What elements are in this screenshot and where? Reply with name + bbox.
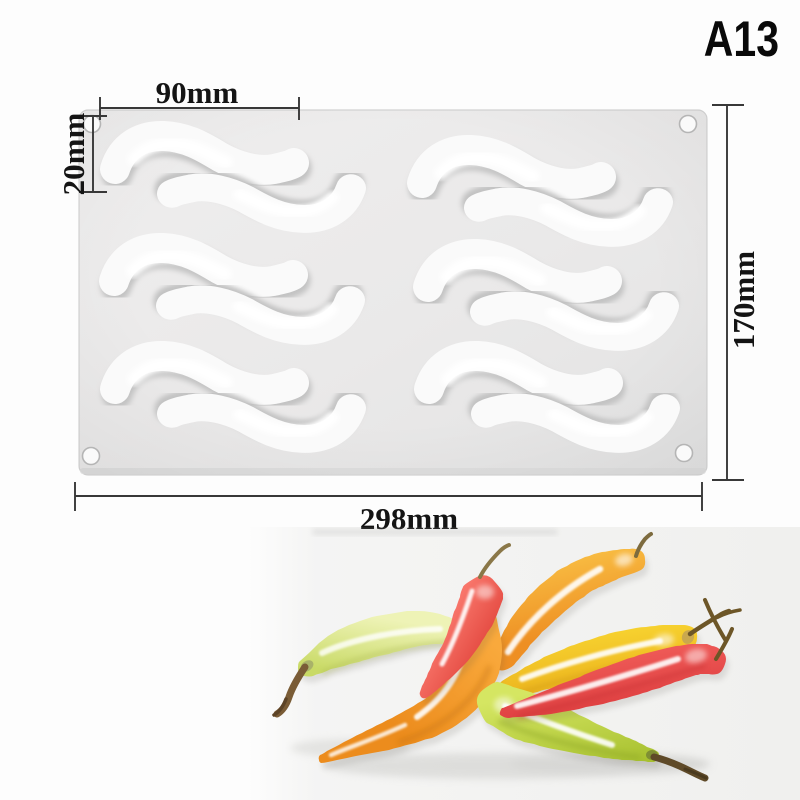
svg-text:20mm: 20mm	[56, 113, 91, 196]
svg-text:A13: A13	[704, 11, 779, 67]
svg-text:90mm: 90mm	[156, 75, 239, 110]
svg-text:170mm: 170mm	[726, 251, 761, 349]
